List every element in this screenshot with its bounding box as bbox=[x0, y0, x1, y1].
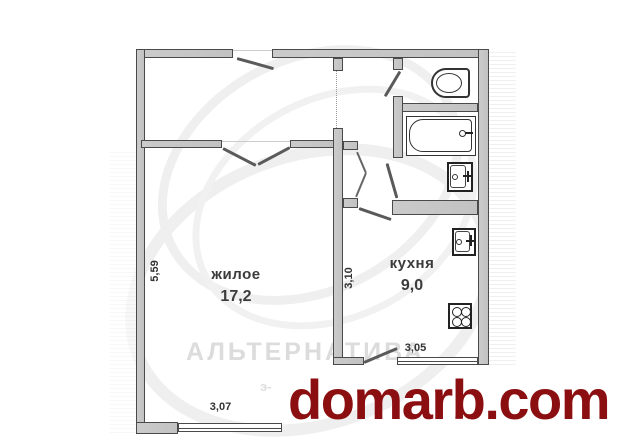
dim-living-height: 5,59 bbox=[149, 249, 161, 293]
kitchen-window bbox=[397, 357, 478, 365]
left-wall-hatching bbox=[110, 150, 136, 433]
wall-mid-stub bbox=[333, 58, 343, 71]
closet-stub-bottom bbox=[343, 198, 358, 208]
dim-kitchen-width: 3,05 bbox=[388, 342, 443, 354]
toilet-icon bbox=[431, 68, 470, 98]
living-window bbox=[178, 423, 282, 432]
living-door-threshold bbox=[222, 141, 290, 142]
wall-left bbox=[136, 49, 145, 434]
wall-living-top-b bbox=[290, 140, 335, 148]
wall-living-top-a bbox=[141, 140, 222, 148]
dim-living-width: 3,07 bbox=[193, 401, 248, 413]
watermark-note-text: э- bbox=[260, 379, 272, 394]
living-room-label: жилое bbox=[186, 266, 286, 283]
bathtub-icon bbox=[406, 116, 476, 156]
floorplan-image: АЛЬТЕРНАТИВА э- bbox=[0, 0, 630, 442]
entrance-threshold bbox=[233, 50, 272, 51]
wall-top-right bbox=[272, 49, 489, 58]
kitchen-label: кухня bbox=[362, 255, 462, 272]
stove-icon bbox=[448, 303, 472, 329]
washbasin-icon bbox=[447, 162, 473, 192]
kitchen-area: 9,0 bbox=[362, 277, 462, 295]
wall-living-bottom-block bbox=[136, 422, 178, 434]
dim-hall-height: 3,10 bbox=[343, 256, 355, 300]
wall-wc-stub bbox=[393, 58, 403, 70]
closet-stub-top bbox=[343, 141, 358, 150]
wall-wc-bottom bbox=[402, 103, 478, 112]
site-watermark-text: domarb.com bbox=[288, 372, 609, 428]
right-wall-hatching bbox=[489, 50, 516, 365]
kitchen-sink-icon bbox=[452, 228, 476, 256]
wall-right bbox=[478, 49, 489, 365]
wall-mid-vertical bbox=[333, 128, 343, 365]
wall-top-left bbox=[137, 49, 233, 58]
open-passage-line bbox=[336, 71, 337, 128]
wall-kitchen-bottom-solid bbox=[333, 357, 364, 365]
wall-bath-kitchen bbox=[392, 200, 478, 215]
living-room-area: 17,2 bbox=[186, 288, 286, 306]
